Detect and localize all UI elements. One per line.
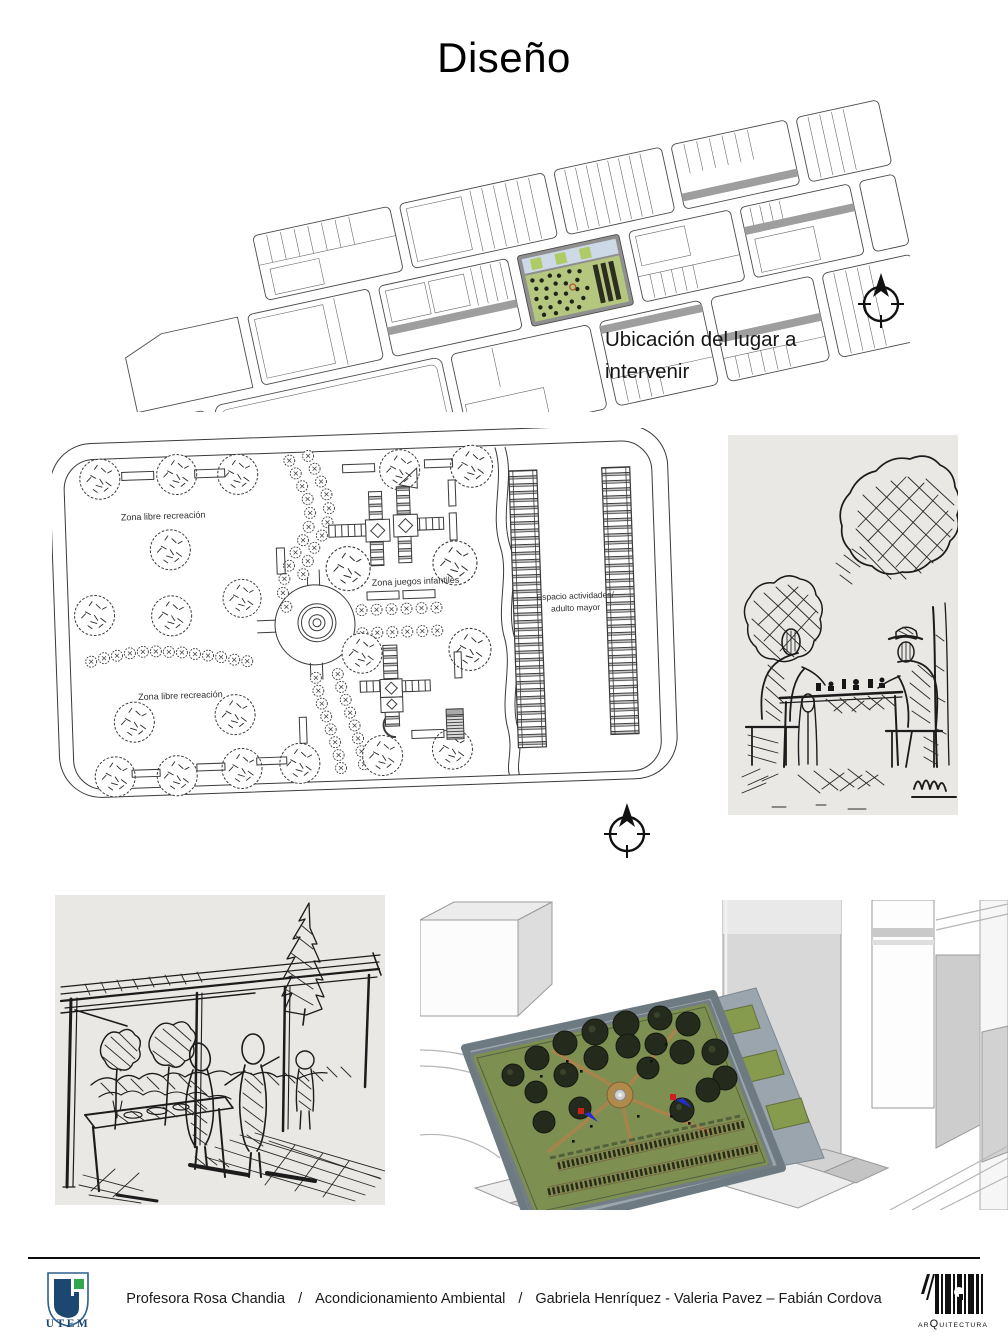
- credit-separator: /: [518, 1291, 522, 1307]
- footer-credits: Profesora Rosa Chandia/Acondicionamiento…: [0, 1291, 1008, 1307]
- label-zona-juegos: Zona juegos infantiles: [372, 575, 460, 588]
- label-espacio-2: adulto mayor: [551, 602, 601, 614]
- sketch-small-figure: [798, 694, 817, 765]
- credit-course: Acondicionamiento Ambiental: [315, 1291, 505, 1307]
- arq-big-q: Q: [930, 1318, 940, 1330]
- credit-professor: Profesora Rosa Chandia: [126, 1291, 285, 1307]
- park-3d-render: [420, 900, 1008, 1210]
- footer-divider: [28, 1257, 980, 1259]
- chess-pieces: [816, 678, 885, 692]
- pergola-figures: [186, 1034, 314, 1177]
- map-site-block: [517, 234, 634, 327]
- credit-students: Gabriela Henríquez - Valeria Pavez – Fab…: [535, 1291, 881, 1307]
- pergola-table: [85, 1097, 233, 1191]
- sketch-tree-canopies: [744, 456, 958, 661]
- pergola-structure: [61, 953, 381, 1187]
- chess-players-sketch: [728, 435, 958, 815]
- label-zona-libre-top: Zona libre recreación: [121, 510, 206, 523]
- north-compass-icon: [849, 268, 913, 332]
- label-zona-libre-bottom: Zona libre recreación: [138, 689, 223, 702]
- design-slide: Diseño: [0, 0, 1008, 1344]
- north-compass-icon-plan: [595, 798, 659, 862]
- pergola-ground: [79, 1133, 385, 1203]
- arquitectura-label: ARQUITECTURA: [912, 1318, 994, 1330]
- location-caption: Ubicación del lugar a intervenir: [605, 324, 830, 388]
- pergola-sketch: [55, 895, 385, 1205]
- arquitectura-logo: [919, 1272, 987, 1316]
- utem-label: UTEM: [32, 1318, 104, 1330]
- sketch-right-player: [878, 627, 942, 767]
- sketch-ground-hatching: [742, 769, 956, 809]
- credit-separator: /: [298, 1291, 302, 1307]
- label-espacio-1: Espacio actividades/: [536, 589, 614, 602]
- park-plan: Zona libre recreación Zona juegos infant…: [52, 428, 684, 828]
